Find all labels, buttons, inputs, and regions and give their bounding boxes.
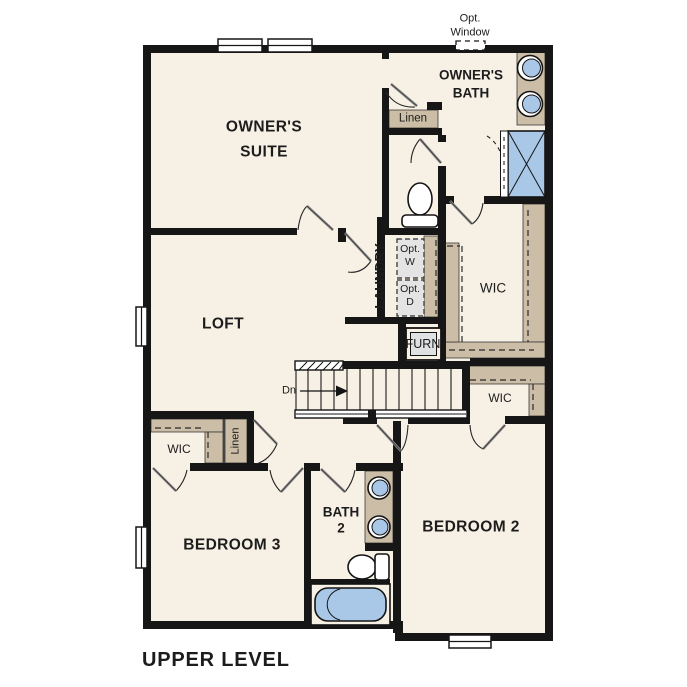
sink-bath2 bbox=[368, 516, 390, 538]
window bbox=[136, 527, 147, 568]
wic-shelf-left bbox=[445, 243, 459, 342]
opt-w-label-line2: W bbox=[405, 257, 415, 268]
window bbox=[268, 39, 312, 52]
owners-bath-label-line1: OWNER'S bbox=[439, 68, 503, 82]
bathtub bbox=[311, 584, 390, 625]
bath2-label-line2: 2 bbox=[337, 521, 345, 535]
plan-title: UPPER LEVEL bbox=[142, 649, 290, 672]
stair-railing-top bbox=[295, 361, 343, 370]
furnace-label: FURN bbox=[406, 338, 441, 351]
bedroom2-label: BEDROOM 2 bbox=[422, 519, 519, 535]
window bbox=[136, 307, 147, 346]
toilet-bath2 bbox=[348, 554, 389, 580]
wic-shelf-right bbox=[523, 204, 545, 342]
opt-window-label-line1: Opt. bbox=[460, 14, 481, 25]
bedroom2-wic-label: WIC bbox=[488, 392, 511, 404]
opt-d-label-line2: D bbox=[406, 297, 414, 308]
owners-wic-label: WIC bbox=[480, 281, 506, 295]
shower bbox=[501, 131, 546, 197]
window bbox=[449, 635, 491, 648]
sink-bath2 bbox=[368, 477, 390, 499]
linen-lower-label: Linen bbox=[231, 428, 242, 455]
owners-suite-label-line2: SUITE bbox=[240, 144, 288, 160]
bedroom3-wic-label: WIC bbox=[167, 443, 190, 455]
opt-w-label-line1: Opt. bbox=[400, 244, 420, 255]
floor-plan-drawing bbox=[0, 0, 687, 687]
wic3-shelf-top bbox=[151, 419, 223, 432]
wic2-shelf-right bbox=[529, 384, 545, 416]
owners-suite-label-line1: OWNER'S bbox=[226, 119, 302, 135]
wic2-shelf-top bbox=[467, 366, 545, 384]
linen-upper-label: Linen bbox=[399, 113, 427, 125]
owners-bath-label-line2: BATH bbox=[453, 86, 490, 100]
laundry-label: LAUNDRY bbox=[373, 243, 387, 309]
loft-label: LOFT bbox=[202, 316, 244, 332]
owners-sink bbox=[518, 92, 543, 117]
bath2-label-line1: BATH bbox=[323, 505, 360, 519]
window bbox=[218, 39, 262, 52]
stairs-down-label: Dn bbox=[282, 386, 296, 397]
floor-plan: Opt. Window OWNER'S SUITE OWNER'S BATH L… bbox=[0, 0, 687, 687]
optional-window bbox=[456, 41, 485, 50]
owners-sink bbox=[518, 56, 543, 81]
opt-d-label-line1: Opt. bbox=[400, 284, 420, 295]
bedroom3-label: BEDROOM 3 bbox=[183, 537, 280, 553]
opt-window-label-line2: Window bbox=[450, 28, 489, 39]
